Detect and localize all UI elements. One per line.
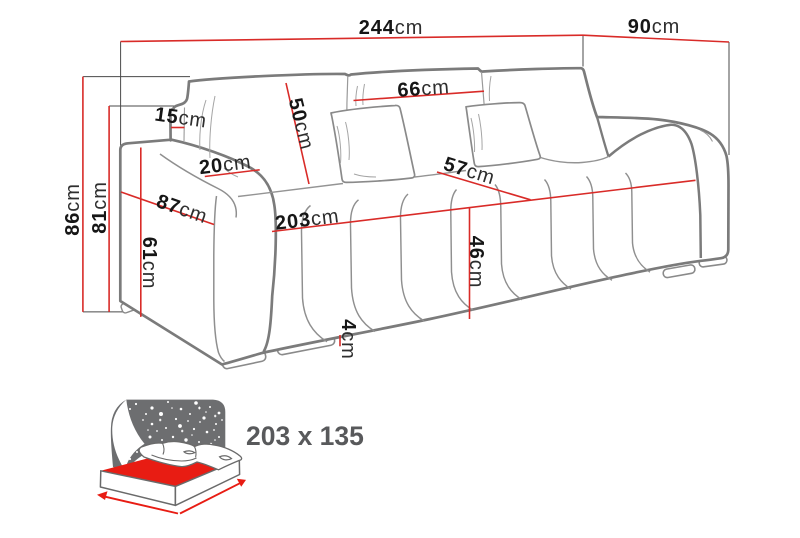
svg-text:4cm: 4cm xyxy=(337,319,359,360)
svg-text:61cm: 61cm xyxy=(138,237,160,290)
svg-text:66cm: 66cm xyxy=(397,76,451,102)
svg-text:86cm: 86cm xyxy=(62,183,84,236)
svg-text:203 x 135: 203 x 135 xyxy=(246,421,364,451)
svg-text:46cm: 46cm xyxy=(465,236,487,289)
svg-text:81cm: 81cm xyxy=(89,181,111,234)
svg-text:90cm: 90cm xyxy=(628,16,681,38)
svg-text:244cm: 244cm xyxy=(359,17,424,39)
